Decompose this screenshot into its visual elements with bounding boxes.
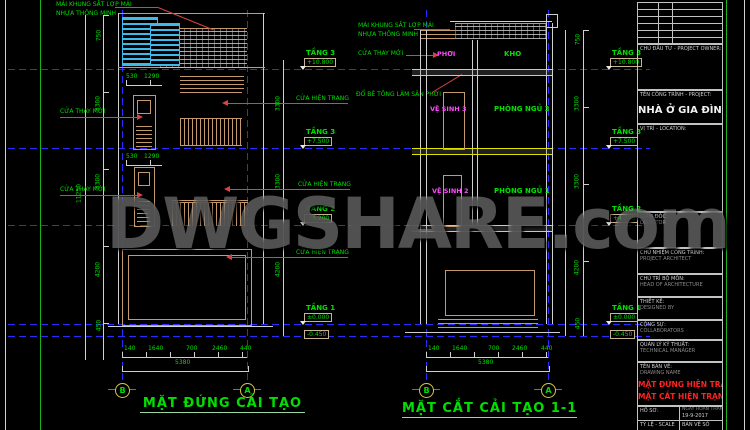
collaborator-label: CỘNG SỰ:: [638, 321, 722, 328]
roof-louver-panel-2: [150, 23, 180, 66]
door-dim-label: 1290: [144, 73, 159, 80]
dim-label: 2460: [212, 345, 227, 352]
new-door-leader-f3: [60, 117, 140, 118]
collaborator-sub: COLLABORATORS: [638, 328, 722, 334]
level-name: TẦNG 3: [306, 128, 335, 136]
door-dim-label: 530: [126, 73, 137, 80]
level-marker: [606, 66, 612, 70]
designer-label: THIẾT KẾ:: [638, 298, 722, 305]
new-door-label-f2: CỬA THAY MỚI: [60, 186, 105, 194]
dim-line-right: [426, 352, 548, 358]
designer-section: THIẾT KẾ: DESIGNED BY: [637, 297, 723, 320]
section-new-door-note: CỬA THAY MỚI: [358, 50, 403, 58]
dim-label: 700: [488, 345, 499, 352]
level-marker: [606, 321, 612, 325]
section-wall-right-inner: [552, 23, 553, 324]
project-label: TÊN CÔNG TRÌNH - PROJECT:: [638, 91, 722, 98]
dim-label: 440: [541, 345, 552, 352]
dim-label: 700: [186, 345, 197, 352]
owner-label: CHỦ ĐẦU TƯ - PROJECT OWNER:: [638, 45, 722, 52]
roof-note-line2: NHỰA THÔNG MINH: [56, 10, 116, 18]
sheet-border-line-right: [744, 0, 745, 430]
level-marker: [300, 145, 306, 149]
level-value-base: -0.450: [610, 330, 635, 339]
room-label-phoi: PHƠI: [437, 50, 455, 58]
cad-sheet: 750 3300 3300 4200 450 11250 3300 3300 4…: [0, 0, 750, 430]
scale-label: TỶ LỆ - SCALE: [638, 421, 679, 428]
drawing-name-label: TÊN BẢN VẼ:: [638, 363, 722, 370]
section-concrete-note: ĐỔ BÊ TÔNG LÀM SÂN PHƠI: [356, 91, 441, 99]
slab-level-2: [412, 148, 552, 155]
door-dim-line-f2: [126, 160, 162, 166]
ground-line-left: [108, 326, 273, 327]
section-new-door-leader: [406, 55, 436, 56]
level-value: +7.500: [610, 137, 638, 146]
section-roof-top-line: [450, 21, 552, 22]
location-label: VỊ TRÍ - LOCATION:: [638, 125, 722, 132]
slab-level-3: [412, 69, 552, 76]
dim-total-line-right: [426, 366, 550, 372]
technical-manager-sub: TECHNICAL MANAGER: [638, 348, 722, 354]
room-label-pn3: PHÒNG NGỦ 3: [494, 105, 550, 113]
room-label-vs3: VỆ SINH 3: [430, 105, 467, 113]
existing-door-leader-f3: [228, 103, 348, 104]
project-section: TÊN CÔNG TRÌNH - PROJECT: NHÀ Ở GIA ĐÌNH: [637, 90, 723, 124]
designer-sub: DESIGNED BY: [638, 305, 722, 311]
level-value: +7.500: [304, 137, 332, 146]
vdim-label: 750: [575, 25, 582, 55]
dim-line-left: [122, 352, 247, 358]
level-value: +10.800: [304, 58, 336, 67]
discipline-head-sub: HEAD OF ARCHITECTURE: [638, 282, 722, 288]
leader-arrow: [222, 100, 228, 106]
door-dim-line-f3: [126, 80, 162, 86]
level-value-base: -0.450: [304, 330, 329, 339]
dim-label: 440: [240, 345, 251, 352]
sheet-border-line: [5, 0, 6, 430]
dim-total-label: 5380: [478, 359, 493, 366]
section-door-f3: [443, 92, 465, 150]
technical-manager-label: QUẢN LÝ KỸ THUẬT:: [638, 341, 722, 348]
vdim-label: 4200: [95, 255, 102, 285]
dim-label: 1640: [452, 345, 467, 352]
dim-label: 140: [428, 345, 439, 352]
section-roof-slab-hatch: [455, 23, 547, 39]
right-drawing-title: MẶT CẮT CẢI TẠO 1-1: [402, 401, 577, 418]
dim-label: 2460: [512, 345, 527, 352]
room-label-kho: KHO: [504, 50, 521, 58]
dim-total-label: 5380: [175, 359, 190, 366]
level-name: TẦNG 1: [306, 304, 335, 312]
drawing-name-2: MẶT CẮT HIỆN TRẠNG: [638, 392, 722, 401]
section-ground-slab-band: [438, 319, 538, 330]
grid-bubble-B: B: [419, 383, 434, 398]
opening3-railing: [180, 118, 242, 145]
roof-note-leader: [115, 7, 158, 8]
parapet-top-line: [118, 13, 265, 14]
level-marker: [300, 66, 306, 70]
opening3-lintel-line: [180, 92, 242, 93]
wall-left-line: [118, 13, 119, 324]
door-dim-label: 530: [126, 153, 137, 160]
level-marker: [300, 321, 306, 325]
terrace-railing-band: [180, 76, 244, 89]
ho-so-label: HỒ SƠ:: [638, 407, 679, 414]
level-name: TẦNG 3: [306, 49, 335, 57]
drawing-name-1: MẶT ĐỨNG HIỆN TRẠNG: [638, 380, 722, 389]
owner-section: CHỦ ĐẦU TƯ - PROJECT OWNER:: [637, 44, 723, 90]
leader-arrow: [137, 114, 143, 120]
discipline-head-section: CHỦ TRÌ BỘ MÔN: HEAD OF ARCHITECTURE: [637, 274, 723, 297]
dim-total-line-left: [122, 366, 249, 372]
vdim-label: 750: [96, 21, 103, 51]
collaborator-section: CỘNG SỰ: COLLABORATORS: [637, 320, 723, 340]
technical-manager-section: QUẢN LÝ KỸ THUẬT: TECHNICAL MANAGER: [637, 340, 723, 362]
door-floor3: [133, 95, 156, 150]
sheet-number-label: BẢN VẼ SỐ: [680, 421, 722, 428]
discipline-head-label: CHỦ TRÌ BỘ MÔN:: [638, 275, 722, 282]
new-door-label-f3: CỬA THAY MỚI: [60, 108, 105, 116]
drawing-name-sub: DRAWING NAME: [638, 370, 722, 376]
door-dim-label: 1290: [144, 153, 159, 160]
completion-date-value: 19-9-2017: [680, 413, 722, 419]
wall-right-line: [263, 13, 264, 324]
revision-table: [637, 2, 723, 44]
existing-door-label-f3: CỬA HIỆN TRẠNG: [296, 95, 349, 103]
left-drawing-title: MẶT ĐỨNG CẢI TẠO: [140, 396, 305, 413]
bottom-table: HỒ SƠ: NGÀY HOÀN THÀNH 19-9-2017 TỶ LỆ -…: [637, 406, 723, 430]
vdim-label: 450: [96, 311, 103, 341]
drawing-name-section: TÊN BẢN VẼ: DRAWING NAME MẶT ĐỨNG HIỆN T…: [637, 362, 723, 406]
watermark: DWGSHARE.com: [106, 183, 729, 265]
section-concrete-leader: [432, 74, 463, 93]
opening3-sill-line: [180, 145, 242, 146]
grid-bubble-A: A: [541, 383, 556, 398]
door-floor3-window: [137, 100, 151, 114]
dim-label: 1640: [148, 345, 163, 352]
door-floor3-louvers: [136, 126, 152, 147]
project-name: NHÀ Ở GIA ĐÌNH: [638, 105, 722, 116]
vdim-label: 450: [575, 309, 582, 339]
dim-label: 140: [124, 345, 135, 352]
section-ground-base-line: [405, 332, 560, 333]
section-ground-opening: [445, 270, 535, 316]
vdim-label: 3300: [574, 89, 581, 119]
grid-bubble-B: B: [115, 383, 130, 398]
sheet-frame-line-left: [40, 0, 41, 430]
level-value: ±0.000: [304, 313, 332, 322]
level-value: ±0.000: [610, 313, 638, 322]
section-roof-note-line2: NHỰA THÔNG MINH: [358, 31, 418, 39]
level-marker: [606, 145, 612, 149]
